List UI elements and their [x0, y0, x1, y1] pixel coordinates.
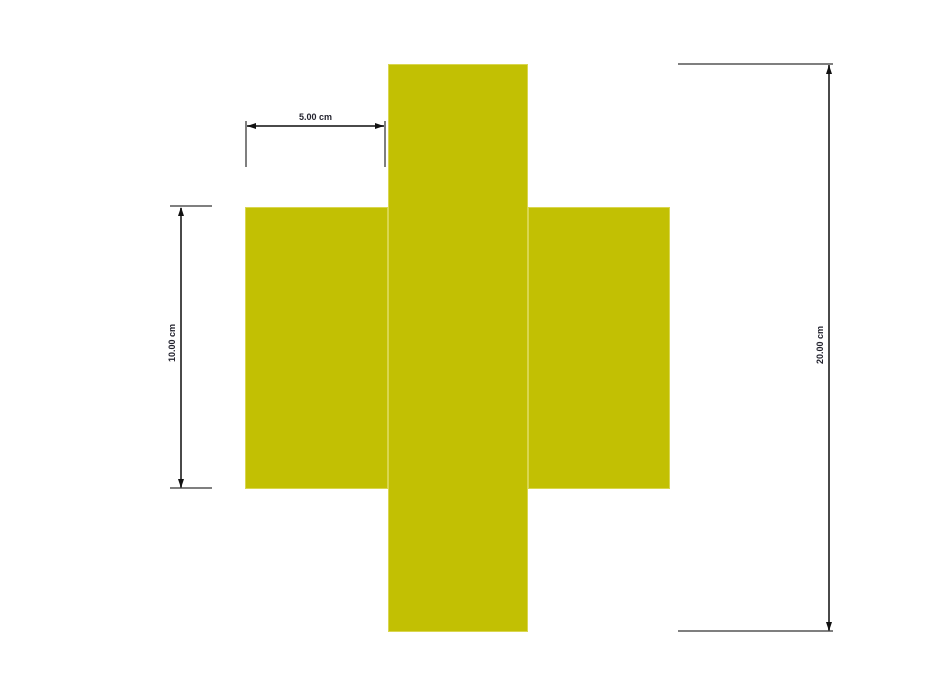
witness-line-top [170, 205, 212, 207]
arrow-down-icon [178, 479, 184, 488]
dimension-label[interactable]: 20.00 cm [814, 326, 826, 364]
arrow-down-icon [826, 622, 832, 631]
cross-vertical-bar[interactable] [388, 64, 528, 632]
arrow-up-icon [178, 207, 184, 216]
cross-left-arm[interactable] [245, 207, 388, 489]
arrow-left-icon [247, 123, 256, 129]
witness-line-right [384, 121, 386, 167]
dimension-label[interactable]: 5.00 cm [246, 111, 385, 123]
witness-line-top [678, 63, 833, 65]
witness-line-bottom [678, 630, 833, 632]
dimension-label[interactable]: 10.00 cm [166, 324, 178, 362]
dimension-line [247, 125, 384, 127]
dimension-line [180, 208, 182, 488]
arrow-right-icon [375, 123, 384, 129]
cross-right-arm[interactable] [528, 207, 670, 489]
witness-line-bottom [170, 487, 212, 489]
arrow-up-icon [826, 65, 832, 74]
dimension-line [828, 65, 830, 631]
drawing-canvas: 5.00 cm 10.00 cm 20.00 cm [0, 0, 926, 694]
